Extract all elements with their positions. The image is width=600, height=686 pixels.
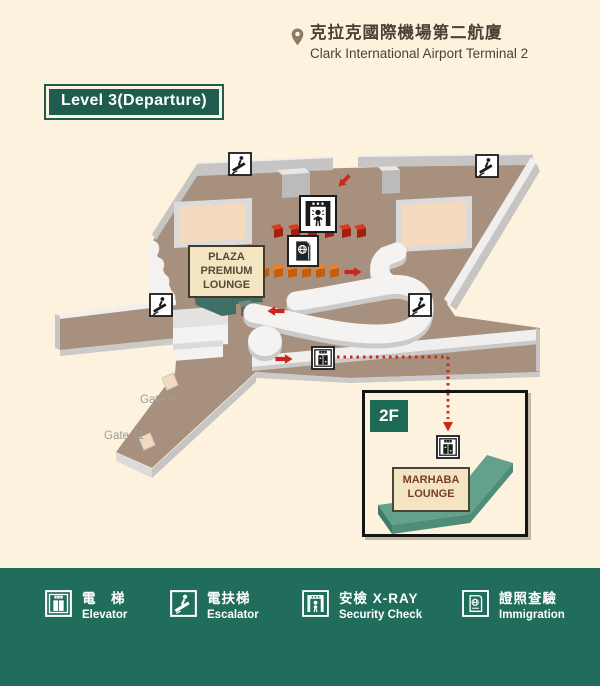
legend-label-zh: 證照查驗 bbox=[499, 591, 565, 607]
elevator-icon bbox=[312, 347, 334, 369]
security-check-icon bbox=[302, 590, 329, 617]
security-check-icon bbox=[300, 196, 336, 232]
legend-label-zh: 安檢 X-RAY bbox=[339, 591, 422, 607]
immigration-icon bbox=[462, 590, 489, 617]
legend-label-en: Elevator bbox=[82, 607, 127, 624]
legend-label-en: Immigration bbox=[499, 607, 565, 624]
inset-floor-badge: 2F bbox=[370, 400, 408, 432]
legend-label-en: Escalator bbox=[207, 607, 259, 624]
legend-label-zh: 電 梯 bbox=[82, 591, 127, 607]
escalator-icon bbox=[476, 155, 498, 177]
legend-bar: 電 梯 Elevator 電扶梯 Escalator bbox=[0, 568, 600, 686]
escalator-icon bbox=[150, 294, 172, 316]
inset-2f: 2F MARHABA LOUNGE bbox=[362, 390, 528, 537]
escalator-icon bbox=[229, 153, 251, 175]
legend-item-immigration: 證照查驗 Immigration bbox=[462, 590, 565, 624]
legend-label-en: Security Check bbox=[339, 607, 422, 624]
legend-item-elevator: 電 梯 Elevator bbox=[45, 590, 127, 624]
gate-11-label: Gate 11 bbox=[104, 430, 144, 442]
airport-map-page: 克拉克國際機場第二航廈 Clark International Airport … bbox=[0, 0, 600, 686]
plaza-premium-lounge-label: PLAZA PREMIUM LOUNGE bbox=[188, 245, 265, 298]
elevator-path-dotted bbox=[443, 393, 453, 432]
legend-label-zh: 電扶梯 bbox=[207, 591, 259, 607]
legend-item-escalator: 電扶梯 Escalator bbox=[170, 590, 259, 624]
immigration-icon bbox=[288, 236, 318, 266]
escalator-icon bbox=[409, 294, 431, 316]
elevator-icon bbox=[45, 590, 72, 617]
gate-9-label: Gate 9 bbox=[140, 394, 175, 406]
escalator-icon bbox=[170, 590, 197, 617]
marhaba-lounge-label: MARHABA LOUNGE bbox=[392, 467, 470, 512]
legend-item-security-check: 安檢 X-RAY Security Check bbox=[302, 590, 422, 624]
elevator-icon bbox=[437, 436, 459, 458]
